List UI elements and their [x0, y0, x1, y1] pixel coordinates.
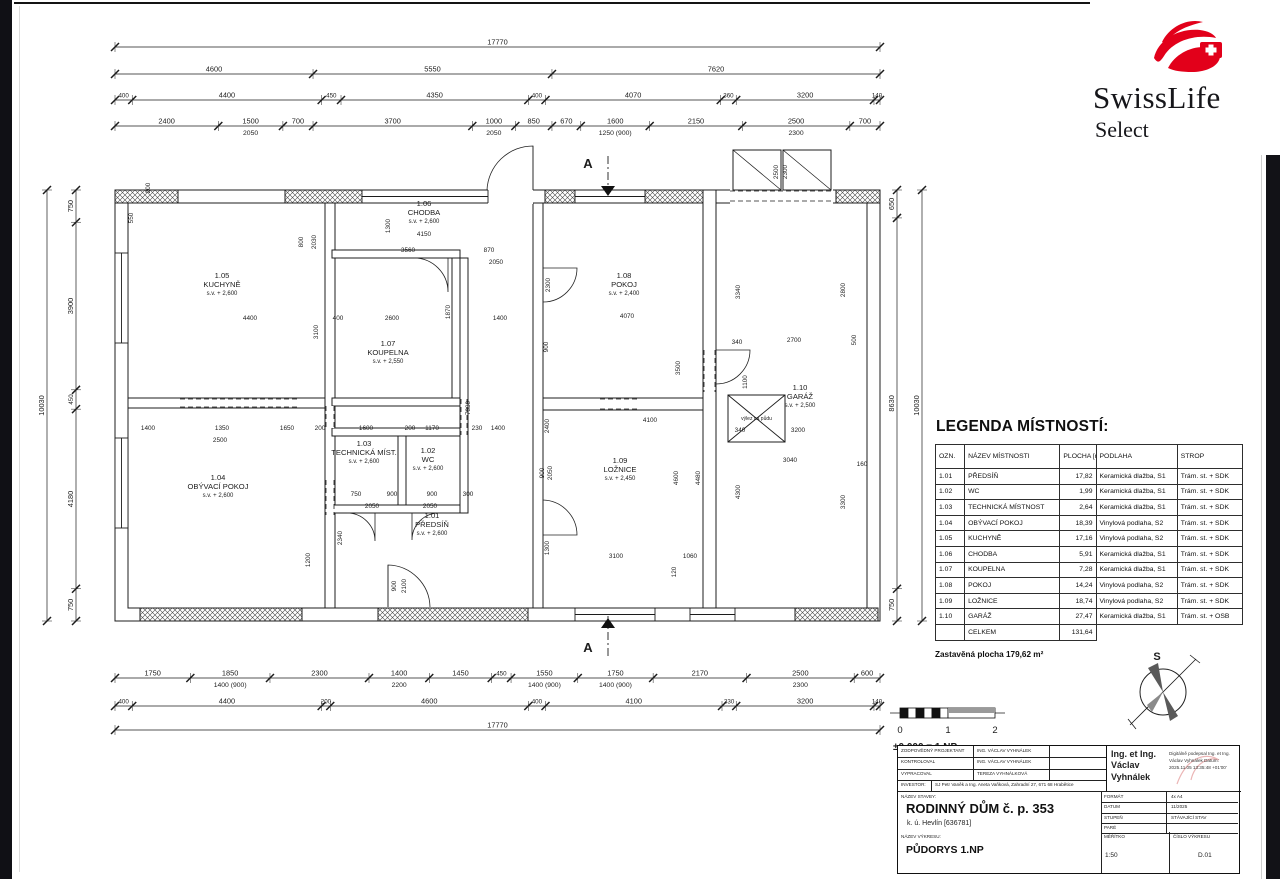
svg-text:1400 (900): 1400 (900)	[214, 682, 247, 689]
legend-row: 1.01PŘEDSÍŇ17,82Keramická dlažba, S1Trám…	[936, 469, 1243, 485]
svg-text:1.04: 1.04	[211, 473, 226, 482]
svg-text:140: 140	[872, 93, 883, 100]
svg-text:2200: 2200	[392, 682, 407, 689]
svg-text:1.06: 1.06	[417, 199, 432, 208]
svg-text:160: 160	[857, 461, 868, 468]
svg-text:650: 650	[887, 198, 896, 210]
tb-label: ZODPOVĚDNÝ PROJEKTANT	[898, 746, 974, 757]
svg-text:400: 400	[118, 699, 129, 706]
legend-row: 1.06CHODBA5,91Keramická dlažba, S1Trám. …	[936, 546, 1243, 562]
svg-text:3700: 3700	[384, 117, 400, 126]
svg-text:550: 550	[128, 212, 135, 223]
cislo-value: D.01	[1198, 852, 1212, 859]
svg-text:A: A	[583, 156, 593, 171]
svg-text:3040: 3040	[783, 457, 798, 464]
signature-name: Ing. et Ing. Václav Vyhnálek	[1111, 749, 1163, 783]
svg-text:1750: 1750	[607, 669, 623, 678]
svg-text:1.10: 1.10	[793, 383, 808, 392]
svg-text:230: 230	[472, 425, 483, 432]
tb-value: SJ Petr Vaněk a Ing. Aneta Vaňková, Zahr…	[932, 780, 1106, 791]
meta-value: STÁVAJÍCÍ STAV	[1167, 813, 1238, 823]
legend-row: 1.10GARÁŽ27,47Keramická dlažba, S1Trám. …	[936, 609, 1243, 625]
svg-text:1870: 1870	[445, 304, 452, 319]
svg-text:2150: 2150	[688, 117, 704, 126]
svg-text:1.02: 1.02	[421, 446, 436, 455]
svg-text:900: 900	[427, 491, 438, 498]
svg-text:1250 (900): 1250 (900)	[599, 130, 632, 137]
svg-text:10030: 10030	[912, 395, 921, 416]
svg-text:1.03: 1.03	[357, 439, 372, 448]
svg-text:1600: 1600	[607, 117, 623, 126]
svg-text:870: 870	[484, 247, 495, 254]
tb-empty-cell	[1050, 746, 1106, 757]
svg-text:4600: 4600	[206, 65, 222, 74]
svg-text:4350: 4350	[426, 91, 442, 100]
svg-text:800: 800	[298, 236, 305, 247]
svg-text:WC: WC	[422, 455, 435, 464]
titleblock-meta: FORMÁT 4x A4 DATUM 11/2025 STUPEŇ STÁVAJ…	[1101, 792, 1238, 833]
inner-dimensions: 4150356087020504400400260014003100187023…	[128, 164, 868, 593]
svg-text:2400: 2400	[544, 418, 551, 433]
svg-text:0: 0	[897, 725, 902, 736]
svg-text:1500: 1500	[242, 117, 258, 126]
svg-text:340: 340	[735, 427, 746, 434]
svg-text:4300: 4300	[735, 484, 742, 499]
svg-text:s.v. + 2,600: s.v. + 2,600	[349, 459, 380, 465]
svg-text:8630: 8630	[887, 395, 896, 411]
svg-text:2100: 2100	[401, 578, 408, 593]
project-name-cell: NÁZEV STAVBY: RODINNÝ DŮM č. p. 353 k. ú…	[898, 792, 1102, 833]
project-name-sub: k. ú. Hevlín [636781]	[907, 820, 971, 827]
legend-row: 1.09LOŽNICE18,74Vinylová podlaha, S2Trám…	[936, 593, 1243, 609]
svg-text:5550: 5550	[424, 65, 440, 74]
svg-text:7330: 7330	[465, 400, 472, 415]
svg-text:2300: 2300	[793, 682, 808, 689]
svg-text:900: 900	[539, 467, 546, 478]
svg-text:1400: 1400	[391, 669, 407, 678]
svg-text:PŘEDSÍŇ: PŘEDSÍŇ	[415, 520, 449, 529]
swisslife-logo: SwissLife Select	[1090, 0, 1280, 155]
plan-geometry: výlez na půdu	[115, 146, 880, 622]
legend-footer: Zastavěná plocha 179,62 m²	[935, 650, 1247, 659]
page-edge-line	[1261, 155, 1262, 879]
svg-text:750: 750	[351, 491, 362, 498]
svg-text:1.05: 1.05	[215, 271, 230, 280]
room-label-1-09: 1.09LOŽNICEs.v. + 2,450	[604, 456, 637, 482]
svg-text:700: 700	[292, 117, 304, 126]
svg-text:900: 900	[391, 580, 398, 591]
project-name: RODINNÝ DŮM č. p. 353	[906, 801, 1054, 816]
svg-text:4600: 4600	[421, 697, 437, 706]
legend-header-row: OZN. NÁZEV MÍSTNOSTI PLOCHA [m²] PODLAHA…	[936, 445, 1243, 469]
svg-text:2030: 2030	[311, 234, 318, 249]
svg-text:17770: 17770	[487, 721, 508, 730]
page-border-top	[14, 2, 1090, 4]
svg-text:1.07: 1.07	[381, 339, 396, 348]
legend-row: 1.03TECHNICKÁ MÍSTNOST2,64Keramická dlaž…	[936, 500, 1243, 516]
tb-value: TEREZA VYHNÁLKOVÁ	[974, 769, 1050, 780]
svg-text:1450: 1450	[452, 669, 468, 678]
svg-text:850: 850	[527, 117, 539, 126]
svg-text:400: 400	[532, 699, 543, 706]
svg-text:360: 360	[723, 93, 734, 100]
svg-text:1000: 1000	[486, 117, 502, 126]
svg-text:2340: 2340	[337, 530, 344, 545]
svg-text:120: 120	[671, 566, 678, 577]
svg-text:2050: 2050	[423, 503, 438, 510]
titleblock-admin: ZODPOVĚDNÝ PROJEKTANT ING. VÁCLAV VYHNÁL…	[898, 746, 1106, 791]
svg-text:s.v. + 2,600: s.v. + 2,600	[417, 531, 448, 537]
svg-text:1: 1	[945, 725, 950, 736]
meta-value: 4x A4	[1167, 792, 1238, 802]
legend-total-row: CELKEM131,64	[936, 624, 1243, 640]
svg-text:2400: 2400	[158, 117, 174, 126]
cislo-label: ČÍSLO VÝKRESU	[1173, 834, 1210, 839]
svg-text:750: 750	[66, 200, 75, 212]
svg-text:4100: 4100	[643, 417, 658, 424]
svg-text:500: 500	[851, 334, 858, 345]
svg-text:1300: 1300	[385, 218, 392, 233]
tb-label: VYPRACOVAL	[898, 769, 974, 780]
svg-text:1350: 1350	[215, 425, 230, 432]
svg-text:s.v. + 2,450: s.v. + 2,450	[605, 476, 636, 482]
north-compass: S	[1128, 651, 1200, 729]
left-black-strip	[0, 0, 12, 879]
drawing-name: PŮDORYS 1.NP	[906, 844, 984, 856]
signature-note: Digitálně podepsal Ing. et Ing. Václav V…	[1169, 751, 1235, 772]
swisslife-flag-icon	[1148, 18, 1228, 80]
svg-text:3100: 3100	[313, 324, 320, 339]
svg-text:200: 200	[405, 425, 416, 432]
svg-text:3900: 3900	[66, 298, 75, 314]
svg-text:2800: 2800	[840, 282, 847, 297]
svg-text:2300: 2300	[311, 669, 327, 678]
svg-text:4600: 4600	[673, 470, 680, 485]
svg-text:s.v. + 2,600: s.v. + 2,600	[409, 219, 440, 225]
svg-text:1650: 1650	[280, 425, 295, 432]
svg-text:s.v. + 2,600: s.v. + 2,600	[207, 291, 238, 297]
room-labels: 1.05KUCHYNĚs.v. + 2,6001.04OBÝVACÍ POKOJ…	[187, 199, 816, 537]
svg-text:1.08: 1.08	[617, 271, 632, 280]
drawing-name-cell: NÁZEV VÝKRESU: PŮDORYS 1.NP	[898, 832, 1102, 873]
room-label-1-08: 1.08POKOJs.v. + 2,400	[609, 271, 640, 297]
svg-text:1850: 1850	[222, 669, 238, 678]
svg-text:s.v. + 2,550: s.v. + 2,550	[373, 359, 404, 365]
svg-text:10030: 10030	[37, 395, 46, 416]
svg-text:s.v. + 2,500: s.v. + 2,500	[785, 403, 816, 409]
room-label-1-07: 1.07KOUPELNAs.v. + 2,550	[367, 339, 409, 365]
svg-text:750: 750	[887, 599, 896, 611]
svg-text:1600: 1600	[359, 425, 374, 432]
legend-row: 1.04OBÝVACÍ POKOJ18,39Vinylová podlaha, …	[936, 515, 1243, 531]
svg-text:3340: 3340	[735, 284, 742, 299]
svg-text:2170: 2170	[692, 669, 708, 678]
meritko-value: 1:50	[1105, 852, 1118, 859]
svg-text:2300: 2300	[545, 277, 552, 292]
svg-text:200: 200	[321, 699, 332, 706]
tb-empty-cell	[1050, 769, 1106, 780]
svg-text:2500: 2500	[792, 669, 808, 678]
svg-text:s.v. + 2,400: s.v. + 2,400	[609, 291, 640, 297]
svg-text:4100: 4100	[626, 697, 642, 706]
svg-text:1200: 1200	[305, 552, 312, 567]
logo-brand-text: SwissLife	[1093, 80, 1221, 116]
tb-value: ING. VÁCLAV VYHNÁLEK	[974, 757, 1050, 768]
svg-text:3200: 3200	[797, 91, 813, 100]
legend-title: LEGENDA MÍSTNOSTÍ:	[936, 418, 1247, 436]
legend-row: 1.05KUCHYNĚ17,16Vinylová podlaha, S2Trám…	[936, 531, 1243, 547]
svg-text:výlez na půdu: výlez na půdu	[741, 415, 772, 422]
svg-text:2050: 2050	[365, 503, 380, 510]
svg-text:450: 450	[496, 671, 507, 678]
meta-label: DATUM	[1101, 802, 1167, 812]
svg-text:2050: 2050	[486, 130, 501, 137]
room-label-1-02: 1.02WCs.v. + 2,600	[413, 446, 444, 472]
svg-text:2300: 2300	[782, 164, 789, 179]
svg-text:3200: 3200	[797, 697, 813, 706]
svg-text:4400: 4400	[219, 697, 235, 706]
meta-value: 11/2025	[1167, 802, 1238, 812]
svg-text:OBÝVACÍ POKOJ: OBÝVACÍ POKOJ	[187, 482, 248, 491]
svg-text:1400 (900): 1400 (900)	[599, 682, 632, 689]
legend-row: 1.08POKOJ14,24Vinylová podlaha, S2Trám. …	[936, 578, 1243, 594]
svg-text:600: 600	[861, 669, 873, 678]
nazev-stavby-label: NÁZEV STAVBY:	[901, 794, 936, 799]
meta-label: STUPEŇ	[1101, 813, 1167, 823]
svg-text:A: A	[583, 640, 593, 655]
legend-header-plocha: PLOCHA [m²]	[1060, 445, 1096, 469]
scale-cell: MĚŘÍTKO 1:50	[1101, 832, 1169, 873]
svg-text:1300: 1300	[544, 540, 551, 555]
svg-text:2050: 2050	[547, 465, 554, 480]
nazev-vykresu-label: NÁZEV VÝKRESU:	[901, 834, 941, 839]
svg-text:900: 900	[387, 491, 398, 498]
room-label-1-03: 1.03TECHNICKÁ MÍST.s.v. + 2,600	[331, 439, 396, 465]
tb-label: KONTROLOVAL	[898, 757, 974, 768]
meritko-label: MĚŘÍTKO	[1104, 834, 1125, 839]
right-black-strip	[1266, 155, 1280, 879]
svg-text:1550: 1550	[536, 669, 552, 678]
legend-row: 1.07KOUPELNA7,28Keramická dlažba, S1Trám…	[936, 562, 1243, 578]
titleblock-mid: NÁZEV STAVBY: RODINNÝ DŮM č. p. 353 k. ú…	[898, 791, 1238, 833]
svg-text:200: 200	[145, 182, 152, 193]
svg-text:s.v. + 2,600: s.v. + 2,600	[203, 493, 234, 499]
tb-empty-cell	[1050, 757, 1106, 768]
svg-text:4150: 4150	[417, 231, 432, 238]
svg-text:1750: 1750	[144, 669, 160, 678]
svg-text:2300: 2300	[788, 130, 803, 137]
svg-text:900: 900	[543, 341, 550, 352]
legend-header-nazev: NÁZEV MÍSTNOSTI	[965, 445, 1060, 469]
svg-text:TECHNICKÁ MÍST.: TECHNICKÁ MÍST.	[331, 448, 396, 457]
room-legend: LEGENDA MÍSTNOSTÍ: OZN. NÁZEV MÍSTNOSTI …	[935, 418, 1247, 659]
svg-text:300: 300	[463, 491, 474, 498]
svg-text:2500: 2500	[213, 437, 228, 444]
svg-text:3560: 3560	[401, 247, 416, 254]
tb-label: INVESTOR:	[898, 780, 932, 791]
floorplan-page: výlez na půduAA1777046005550762040044004…	[0, 0, 1280, 879]
svg-text:200: 200	[315, 425, 326, 432]
svg-text:330: 330	[724, 699, 735, 706]
svg-text:3500: 3500	[675, 360, 682, 375]
svg-text:1100: 1100	[742, 375, 749, 389]
svg-text:700: 700	[859, 117, 871, 126]
logo-sub-text: Select	[1095, 117, 1149, 143]
svg-text:3100: 3100	[609, 553, 624, 560]
svg-text:7620: 7620	[708, 65, 724, 74]
room-label-1-10: 1.10GARÁŽs.v. + 2,500	[785, 383, 816, 409]
svg-text:CHODBA: CHODBA	[408, 208, 441, 217]
svg-text:4070: 4070	[625, 91, 641, 100]
svg-text:1.09: 1.09	[613, 456, 628, 465]
svg-text:2600: 2600	[385, 315, 400, 322]
svg-text:1.01: 1.01	[425, 511, 440, 520]
title-block: ZODPOVĚDNÝ PROJEKTANT ING. VÁCLAV VYHNÁL…	[897, 745, 1240, 874]
legend-row: 1.02WC1,99Keramická dlažba, S1Trám. st. …	[936, 484, 1243, 500]
tb-value: ING. VÁCLAV VYHNÁLEK	[974, 746, 1050, 757]
svg-text:1170: 1170	[425, 425, 439, 432]
svg-text:4180: 4180	[66, 491, 75, 507]
svg-text:s.v. + 2,600: s.v. + 2,600	[413, 466, 444, 472]
svg-text:1060: 1060	[683, 553, 698, 560]
svg-text:4400: 4400	[219, 91, 235, 100]
room-label-1-05: 1.05KUCHYNĚs.v. + 2,600	[203, 271, 240, 297]
svg-text:450: 450	[68, 394, 75, 405]
room-label-1-01: 1.01PŘEDSÍŇs.v. + 2,600	[415, 511, 449, 537]
svg-text:POKOJ: POKOJ	[611, 280, 637, 289]
svg-text:1400: 1400	[141, 425, 156, 432]
svg-text:4070: 4070	[620, 313, 635, 320]
svg-text:4400: 4400	[243, 315, 258, 322]
svg-text:450: 450	[326, 93, 337, 100]
svg-text:400: 400	[532, 93, 543, 100]
svg-text:400: 400	[333, 315, 344, 322]
svg-text:2500: 2500	[773, 164, 780, 179]
svg-text:KUCHYNĚ: KUCHYNĚ	[203, 280, 240, 289]
legend-table: OZN. NÁZEV MÍSTNOSTI PLOCHA [m²] PODLAHA…	[935, 444, 1243, 641]
svg-text:3200: 3200	[791, 427, 806, 434]
svg-text:2: 2	[992, 725, 997, 736]
svg-text:1400 (900): 1400 (900)	[528, 682, 561, 689]
svg-text:2050: 2050	[489, 259, 504, 266]
legend-header-strop: STROP	[1177, 445, 1242, 469]
svg-text:2700: 2700	[787, 337, 802, 344]
svg-text:2500: 2500	[788, 117, 804, 126]
svg-text:1400: 1400	[493, 315, 508, 322]
svg-text:4480: 4480	[695, 470, 702, 485]
svg-text:17770: 17770	[487, 38, 508, 47]
svg-text:400: 400	[118, 93, 129, 100]
room-label-1-04: 1.04OBÝVACÍ POKOJs.v. + 2,600	[187, 473, 248, 499]
svg-text:140: 140	[872, 699, 883, 706]
legend-header-ozn: OZN.	[936, 445, 965, 469]
svg-text:340: 340	[732, 339, 743, 346]
legend-header-podlaha: PODLAHA	[1096, 445, 1177, 469]
meta-label: FORMÁT	[1101, 792, 1167, 802]
titleblock-bottom: NÁZEV VÝKRESU: PŮDORYS 1.NP MĚŘÍTKO 1:50…	[898, 832, 1238, 873]
svg-text:GARÁŽ: GARÁŽ	[787, 392, 814, 401]
svg-text:LOŽNICE: LOŽNICE	[604, 465, 637, 474]
svg-text:670: 670	[560, 117, 572, 126]
svg-text:1400: 1400	[491, 425, 506, 432]
svg-text:KOUPELNA: KOUPELNA	[367, 348, 409, 357]
svg-text:2050: 2050	[243, 130, 258, 137]
svg-text:3300: 3300	[840, 494, 847, 509]
digital-signature-box: Ing. et Ing. Václav Vyhnálek Digitálně p…	[1106, 746, 1241, 792]
page-border-left	[19, 6, 20, 872]
svg-text:750: 750	[66, 599, 75, 611]
drawing-number-cell: ČÍSLO VÝKRESU D.01	[1169, 832, 1238, 873]
